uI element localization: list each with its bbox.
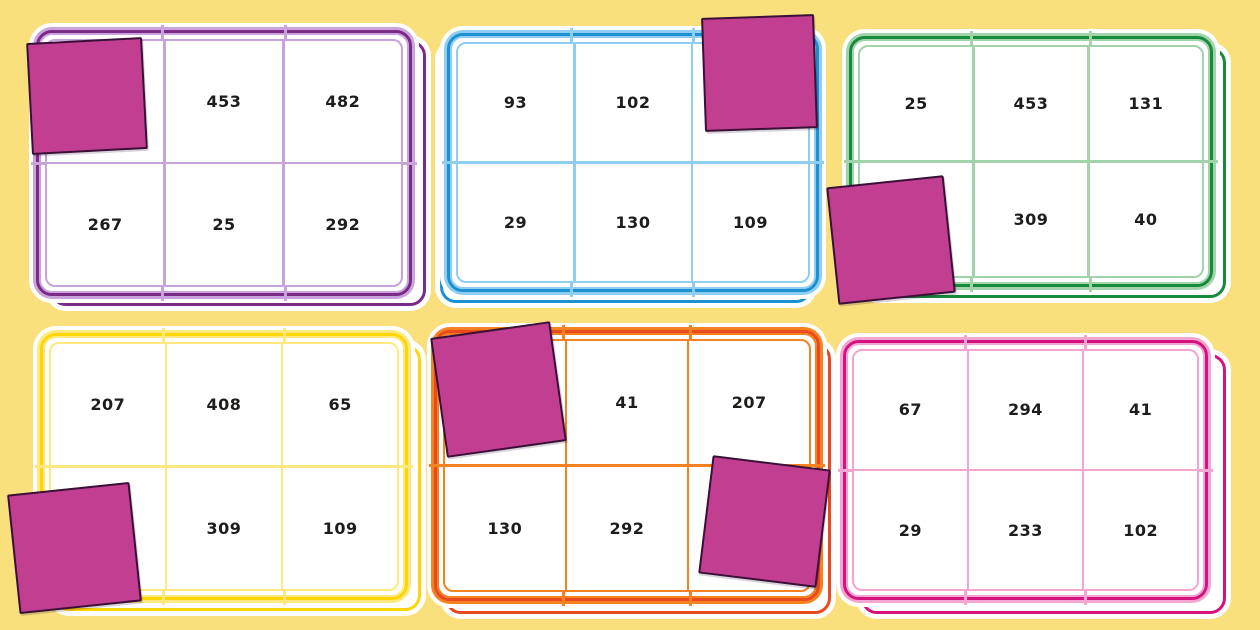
cell-number: 130 xyxy=(616,213,651,232)
bingo-cell[interactable]: 207 xyxy=(51,344,165,465)
bingo-cell[interactable]: 102 xyxy=(1084,471,1197,589)
grid-tick xyxy=(970,31,973,45)
grid-tick xyxy=(162,591,165,605)
cell-number: 102 xyxy=(616,93,651,112)
cell-number: 292 xyxy=(610,519,645,538)
grid-tick xyxy=(442,161,456,164)
cell-number: 41 xyxy=(1129,400,1152,419)
bingo-cell[interactable]: 25 xyxy=(166,164,282,285)
bingo-cell[interactable]: 29 xyxy=(854,471,967,589)
cell-number: 109 xyxy=(733,213,768,232)
grid-tick xyxy=(283,591,286,605)
grid-tick xyxy=(1089,31,1092,45)
magenta-counter[interactable] xyxy=(826,175,956,305)
bingo-cell[interactable]: 482 xyxy=(285,41,401,162)
magenta-counter[interactable] xyxy=(698,455,831,588)
bingo-cell[interactable]: 292 xyxy=(567,467,687,590)
bingo-cell[interactable]: 67 xyxy=(854,351,967,469)
cell-number: 482 xyxy=(325,92,360,111)
bingo-cell[interactable]: 109 xyxy=(283,468,397,589)
grid-tick xyxy=(403,162,417,165)
grid-tick xyxy=(692,28,695,42)
grid-tick xyxy=(1089,278,1092,292)
grid-tick xyxy=(283,328,286,342)
cell-number: 292 xyxy=(325,215,360,234)
grid-tick xyxy=(570,283,573,297)
bingo-card-pink: 67 294 41 29 233 102 xyxy=(843,340,1208,600)
grid-tick xyxy=(161,25,164,39)
bingo-cell[interactable]: 207 xyxy=(689,341,809,464)
bingo-cell[interactable]: 294 xyxy=(969,351,1082,469)
cell-number: 25 xyxy=(212,215,235,234)
bingo-cell[interactable]: 41 xyxy=(567,341,687,464)
grid-tick xyxy=(562,592,565,606)
cell-number: 109 xyxy=(323,519,358,538)
bingo-cell[interactable]: 29 xyxy=(458,164,573,281)
magenta-counter[interactable] xyxy=(7,482,142,614)
cell-number: 130 xyxy=(487,519,522,538)
grid-tick xyxy=(562,325,565,339)
grid-tick xyxy=(844,160,858,163)
grid-tick xyxy=(1084,335,1087,349)
bingo-cell[interactable]: 453 xyxy=(166,41,282,162)
bingo-cell[interactable]: 109 xyxy=(693,164,808,281)
bingo-cell[interactable]: 25 xyxy=(860,47,972,160)
grid-tick xyxy=(35,465,49,468)
grid-tick xyxy=(161,287,164,301)
grid-tick xyxy=(970,278,973,292)
bingo-cell[interactable]: 93 xyxy=(458,44,573,161)
cell-number: 131 xyxy=(1128,94,1163,113)
cell-number: 309 xyxy=(207,519,242,538)
cell-number: 102 xyxy=(1123,521,1158,540)
bingo-cell[interactable]: 130 xyxy=(445,467,565,590)
cell-number: 207 xyxy=(90,395,125,414)
grid-tick xyxy=(689,592,692,606)
bingo-cell[interactable]: 267 xyxy=(47,164,163,285)
cell-number: 65 xyxy=(329,395,352,414)
grid-tick xyxy=(570,28,573,42)
magenta-counter[interactable] xyxy=(701,14,818,132)
bingo-cell[interactable]: 309 xyxy=(975,163,1087,276)
grid-tick xyxy=(429,464,443,467)
cell-number: 29 xyxy=(899,521,922,540)
bingo-cell[interactable]: 453 xyxy=(975,47,1087,160)
grid-tick xyxy=(1084,591,1087,605)
grid-tick xyxy=(1204,160,1218,163)
grid-tick xyxy=(964,591,967,605)
grid-tick xyxy=(964,335,967,349)
grid-tick xyxy=(1199,469,1213,472)
bingo-cell[interactable]: 102 xyxy=(576,44,691,161)
cell-number: 67 xyxy=(899,400,922,419)
bingo-cell[interactable]: 41 xyxy=(1084,351,1197,469)
bingo-cell[interactable]: 233 xyxy=(969,471,1082,589)
grid-tick xyxy=(810,161,824,164)
grid-tick xyxy=(162,328,165,342)
cell-number: 294 xyxy=(1008,400,1043,419)
magenta-counter[interactable] xyxy=(430,321,567,458)
cell-number: 453 xyxy=(207,92,242,111)
bingo-cell[interactable]: 130 xyxy=(576,164,691,281)
grid-tick xyxy=(838,469,852,472)
grid-tick xyxy=(284,25,287,39)
bingo-cell[interactable]: 408 xyxy=(167,344,281,465)
cell-number: 93 xyxy=(504,93,527,112)
cell-number: 408 xyxy=(207,395,242,414)
cell-number: 41 xyxy=(615,393,638,412)
cell-number: 309 xyxy=(1014,210,1049,229)
cell-number: 233 xyxy=(1008,521,1043,540)
cell-number: 29 xyxy=(504,213,527,232)
bingo-cell[interactable]: 131 xyxy=(1090,47,1202,160)
number-grid: 67 294 41 29 233 102 xyxy=(852,349,1199,591)
bingo-cell[interactable]: 292 xyxy=(285,164,401,285)
cell-number: 40 xyxy=(1134,210,1157,229)
bingo-cell[interactable]: 40 xyxy=(1090,163,1202,276)
cell-number: 453 xyxy=(1014,94,1049,113)
cell-number: 207 xyxy=(732,393,767,412)
magenta-counter[interactable] xyxy=(26,37,148,155)
grid-tick xyxy=(692,283,695,297)
grid-tick xyxy=(689,325,692,339)
cell-number: 25 xyxy=(905,94,928,113)
cell-number: 267 xyxy=(88,215,123,234)
card-front: 67 294 41 29 233 102 xyxy=(843,340,1208,600)
grid-tick xyxy=(31,162,45,165)
bingo-cell[interactable]: 65 xyxy=(283,344,397,465)
grid-tick xyxy=(284,287,287,301)
bingo-cell[interactable]: 309 xyxy=(167,468,281,589)
grid-tick xyxy=(399,465,413,468)
